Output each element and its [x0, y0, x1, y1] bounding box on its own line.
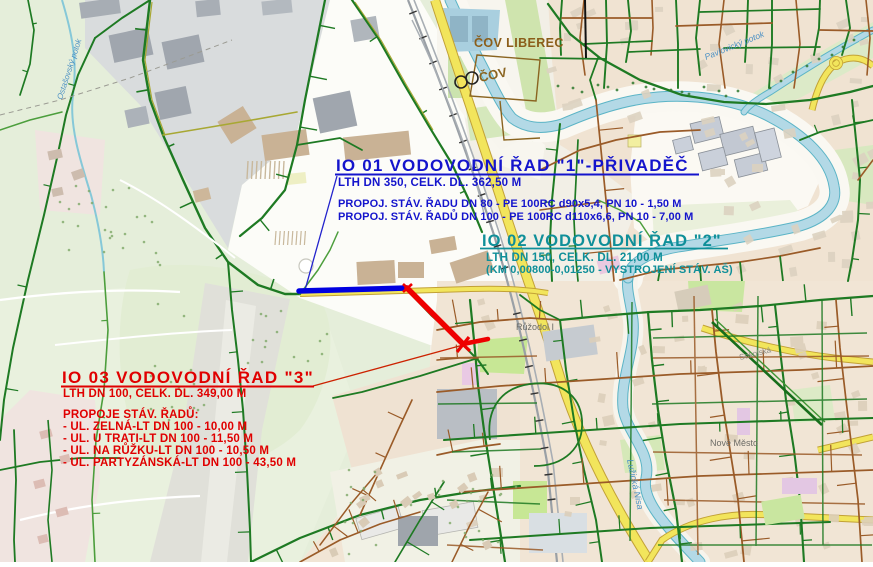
svg-text:Růžodol I: Růžodol I	[516, 322, 554, 332]
svg-text:- UL. U TRATI-LT DN 100 - 11,5: - UL. U TRATI-LT DN 100 - 11,50 M	[63, 433, 253, 445]
svg-text:(KM 0,00800-0,01250 - VYSTROJE: (KM 0,00800-0,01250 - VYSTROJENÍ STÁV. A…	[486, 263, 733, 276]
svg-text:IO 02 VODOVODNÍ ŘAD "2": IO 02 VODOVODNÍ ŘAD "2"	[482, 231, 722, 250]
svg-text:LTH DN 350, CELK. DL. 362,50 M: LTH DN 350, CELK. DL. 362,50 M	[338, 177, 521, 189]
svg-text:IO 03 VODOVODNÍ ŘAD "3": IO 03 VODOVODNÍ ŘAD "3"	[62, 368, 314, 387]
svg-text:LTH DN 100, CELK. DL. 349,00 M: LTH DN 100, CELK. DL. 349,00 M	[63, 388, 246, 400]
svg-text:PROPOJ. STÁV. ŘADŮ DN 100 - PE: PROPOJ. STÁV. ŘADŮ DN 100 - PE 100RC d11…	[338, 209, 693, 223]
svg-text:- UL. NA RŮŽKU-LT DN 100 - 10,: - UL. NA RŮŽKU-LT DN 100 - 10,50 M	[63, 443, 269, 457]
svg-text:PROPOJE STÁV. ŘADŮ:: PROPOJE STÁV. ŘADŮ:	[63, 407, 199, 421]
svg-text:PROPOJ. STÁV. ŘADU DN 80 - PE: PROPOJ. STÁV. ŘADU DN 80 - PE 100RC d90x…	[338, 197, 682, 210]
svg-text:ČOV LIBEREC: ČOV LIBEREC	[474, 35, 564, 50]
svg-text:- UL. ZELNÁ-LT DN 100 - 10,00: - UL. ZELNÁ-LT DN 100 - 10,00 M	[63, 420, 247, 433]
svg-text:LTH DN 150, CELK. DL. 21,00 M: LTH DN 150, CELK. DL. 21,00 M	[486, 252, 663, 264]
svg-text:IO 01 VODOVODNÍ ŘAD "1"-PŘIVAD: IO 01 VODOVODNÍ ŘAD "1"-PŘIVADĚČ	[336, 156, 689, 175]
svg-text:Nové Město: Nové Město	[710, 438, 758, 448]
svg-text:- UL. PARTYZÁNSKÁ-LT DN 100 -: - UL. PARTYZÁNSKÁ-LT DN 100 - 43,50 M	[63, 456, 296, 469]
